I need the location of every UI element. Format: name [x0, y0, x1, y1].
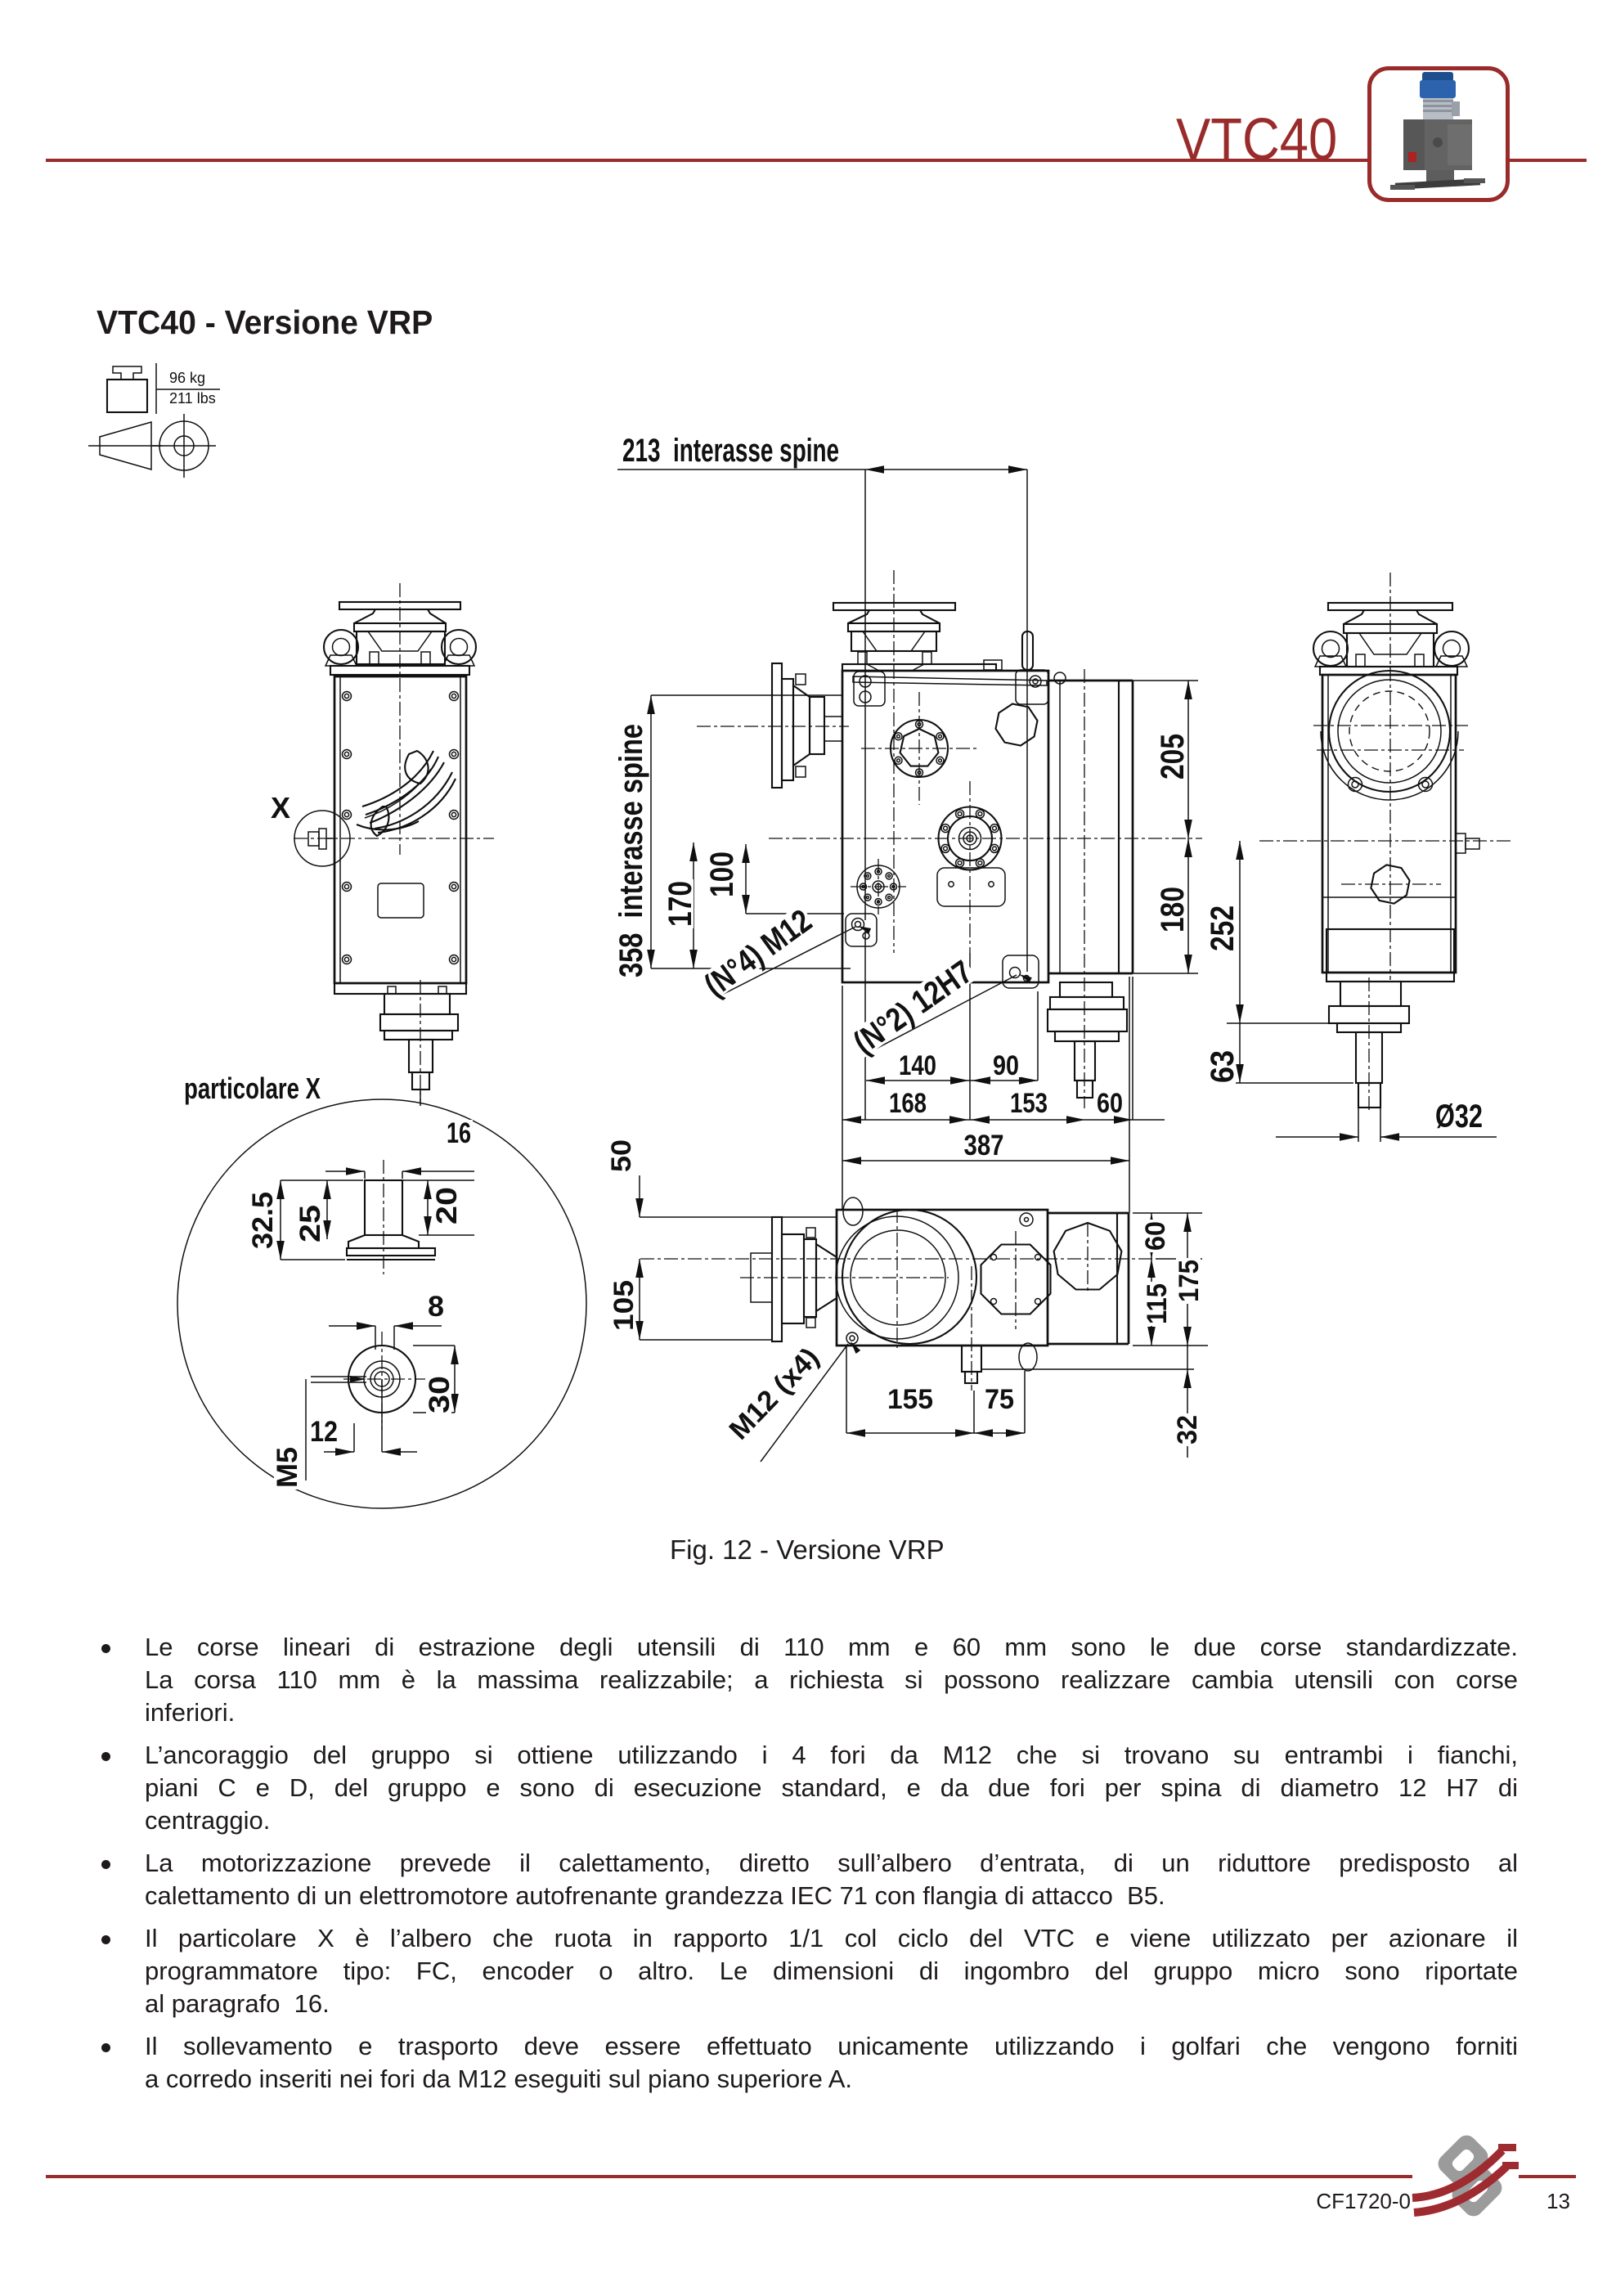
svg-text:252: 252	[1205, 905, 1241, 951]
svg-text:90: 90	[993, 1050, 1019, 1081]
svg-text:50: 50	[606, 1139, 637, 1172]
svg-text:63: 63	[1205, 1050, 1241, 1083]
svg-text:100: 100	[704, 851, 740, 897]
svg-text:16: 16	[447, 1117, 471, 1149]
svg-text:20: 20	[431, 1187, 463, 1224]
svg-text:180: 180	[1155, 887, 1191, 932]
svg-text:170: 170	[662, 881, 698, 927]
svg-text:12: 12	[310, 1416, 338, 1448]
svg-text:175: 175	[1174, 1260, 1205, 1302]
svg-text:Ø32: Ø32	[1435, 1099, 1483, 1135]
svg-text:211 lbs: 211 lbs	[169, 390, 216, 407]
svg-text:96 kg: 96 kg	[169, 370, 205, 386]
svg-text:205: 205	[1155, 734, 1191, 780]
svg-text:(N°2) 12H7: (N°2) 12H7	[847, 954, 979, 1061]
svg-text:25: 25	[294, 1205, 326, 1242]
svg-text:387: 387	[964, 1130, 1004, 1161]
svg-text:140: 140	[899, 1050, 936, 1081]
svg-text:115: 115	[1142, 1283, 1173, 1324]
svg-text:M5: M5	[272, 1447, 303, 1488]
svg-text:60: 60	[1097, 1088, 1123, 1119]
svg-text:X: X	[271, 791, 290, 824]
svg-text:60: 60	[1140, 1221, 1171, 1251]
svg-text:153: 153	[1010, 1088, 1048, 1119]
svg-text:168: 168	[889, 1088, 927, 1119]
svg-text:30: 30	[424, 1376, 456, 1413]
svg-text:155: 155	[887, 1384, 933, 1415]
svg-text:358 interasse spine: 358 interasse spine	[613, 724, 649, 977]
svg-text:M12 (x4): M12 (x4)	[723, 1341, 825, 1445]
svg-text:(N°4) M12: (N°4) M12	[698, 903, 818, 1004]
svg-text:particolare X: particolare X	[184, 1072, 321, 1105]
svg-text:105: 105	[608, 1280, 640, 1331]
svg-text:8: 8	[428, 1291, 444, 1323]
svg-text:32: 32	[1172, 1415, 1203, 1445]
svg-text:32.5: 32.5	[247, 1192, 279, 1249]
svg-text:75: 75	[985, 1384, 1014, 1415]
svg-text:213 interasse spine: 213 interasse spine	[622, 433, 839, 469]
